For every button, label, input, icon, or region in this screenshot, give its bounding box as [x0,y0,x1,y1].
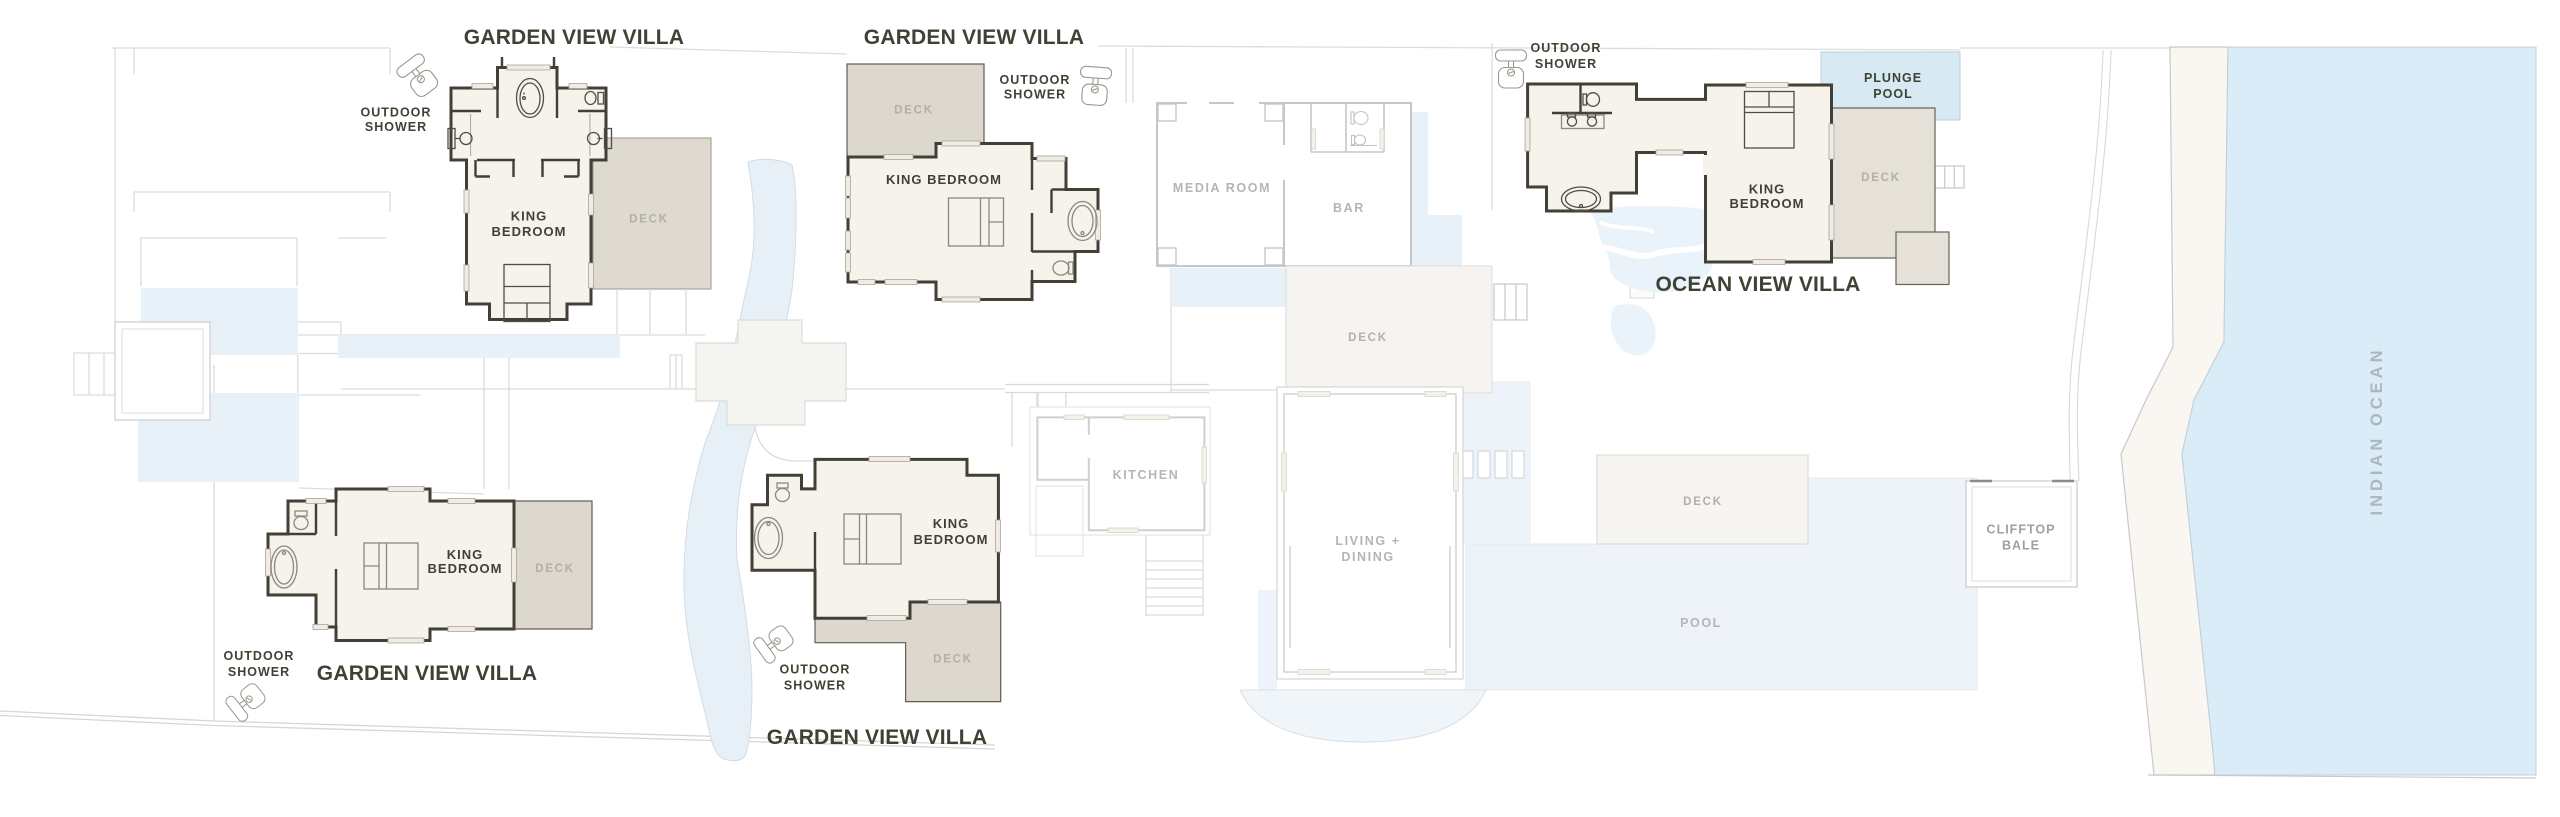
svg-text:BEDROOM: BEDROOM [1730,196,1805,211]
svg-text:DECK: DECK [933,654,973,666]
svg-text:DECK: DECK [894,105,934,117]
svg-text:DECK: DECK [1683,496,1723,508]
svg-text:KITCHEN: KITCHEN [1113,468,1180,482]
svg-text:KING BEDROOM: KING BEDROOM [886,172,1002,187]
svg-text:INDIAN OCEAN: INDIAN OCEAN [2368,346,2386,515]
svg-text:OUTDOOR: OUTDOOR [224,649,295,663]
svg-text:POOL: POOL [1680,616,1722,630]
svg-text:GARDEN VIEW VILLA: GARDEN VIEW VILLA [317,662,537,685]
svg-text:SHOWER: SHOWER [228,665,290,679]
svg-text:SHOWER: SHOWER [365,120,427,134]
svg-text:DECK: DECK [1348,332,1388,344]
svg-text:BEDROOM: BEDROOM [428,561,503,576]
svg-text:OUTDOOR: OUTDOOR [1000,73,1071,87]
svg-text:DINING: DINING [1341,550,1394,564]
svg-text:KING: KING [1749,182,1786,197]
svg-text:OCEAN VIEW VILLA: OCEAN VIEW VILLA [1655,273,1860,296]
svg-text:DECK: DECK [535,563,575,575]
svg-text:MEDIA ROOM: MEDIA ROOM [1173,181,1271,195]
svg-text:KING: KING [511,209,548,224]
svg-text:GARDEN VIEW VILLA: GARDEN VIEW VILLA [464,26,684,49]
svg-text:DECK: DECK [629,214,669,226]
svg-text:SHOWER: SHOWER [1004,88,1066,102]
svg-text:KING: KING [447,547,484,562]
svg-text:DECK: DECK [1861,172,1901,184]
svg-text:GARDEN VIEW VILLA: GARDEN VIEW VILLA [767,726,987,749]
svg-text:GARDEN VIEW VILLA: GARDEN VIEW VILLA [864,26,1084,49]
svg-text:SHOWER: SHOWER [1535,57,1597,71]
svg-text:CLIFFTOP: CLIFFTOP [1987,523,2056,537]
svg-text:LIVING +: LIVING + [1335,534,1400,548]
svg-text:BEDROOM: BEDROOM [914,532,989,547]
svg-text:BEDROOM: BEDROOM [492,224,567,239]
svg-text:KING: KING [933,516,970,531]
svg-text:OUTDOOR: OUTDOOR [361,106,432,120]
svg-text:OUTDOOR: OUTDOOR [1531,41,1602,55]
svg-text:OUTDOOR: OUTDOOR [780,663,851,677]
svg-text:SHOWER: SHOWER [784,679,846,693]
svg-text:PLUNGE: PLUNGE [1864,71,1922,85]
svg-text:POOL: POOL [1873,87,1912,101]
svg-text:BALE: BALE [2002,539,2040,553]
svg-text:BAR: BAR [1333,201,1365,215]
